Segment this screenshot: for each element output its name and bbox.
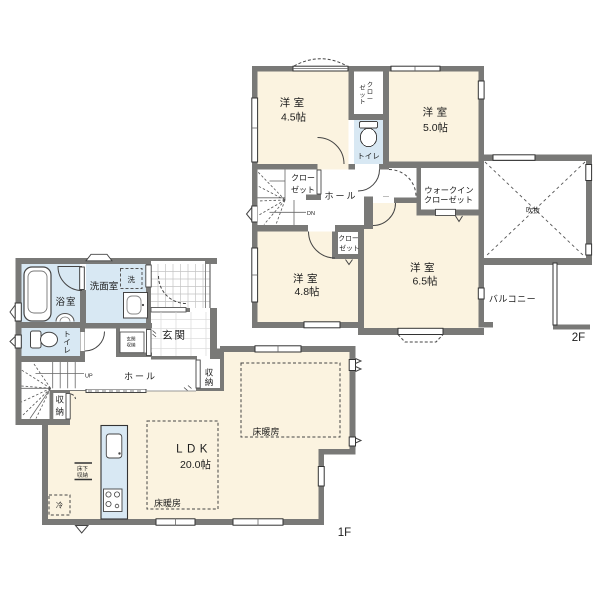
svg-text:冷: 冷 — [56, 501, 63, 510]
svg-text:クローゼット: クローゼット — [424, 195, 473, 205]
svg-text:5.0帖: 5.0帖 — [423, 121, 449, 134]
svg-text:納: 納 — [205, 377, 214, 387]
svg-text:吹抜: 吹抜 — [526, 206, 540, 215]
svg-text:浴室: 浴室 — [55, 296, 76, 308]
svg-text:4.5帖: 4.5帖 — [281, 110, 307, 123]
svg-text:ゼット: ゼット — [339, 244, 359, 253]
svg-text:ロ: ロ — [367, 89, 373, 96]
svg-text:4.8帖: 4.8帖 — [294, 285, 320, 298]
svg-text:洗面室: 洗面室 — [90, 281, 119, 293]
svg-text:20.0帖: 20.0帖 — [180, 458, 211, 471]
svg-text:床暖房: 床暖房 — [154, 498, 181, 509]
svg-text:クロー: クロー — [291, 174, 315, 183]
svg-text:洋室: 洋室 — [280, 96, 308, 109]
svg-text:納: 納 — [56, 407, 65, 417]
svg-text:洋室: 洋室 — [293, 272, 321, 285]
svg-text:ク: ク — [367, 82, 373, 89]
svg-text:洗: 洗 — [128, 274, 136, 284]
svg-text:ウォークイン: ウォークイン — [424, 186, 473, 195]
svg-text:収納: 収納 — [77, 471, 89, 479]
svg-text:ゼット: ゼット — [291, 185, 315, 195]
svg-text:収: 収 — [56, 395, 65, 405]
svg-text:ー: ー — [367, 96, 373, 103]
svg-text:洋室: 洋室 — [423, 106, 451, 119]
svg-text:バルコニー: バルコニー — [489, 294, 536, 304]
svg-text:床暖房: 床暖房 — [252, 426, 279, 437]
svg-text:トイレ: トイレ — [357, 152, 380, 161]
svg-text:2F: 2F — [572, 332, 585, 344]
svg-text:クロー: クロー — [338, 235, 359, 243]
svg-text:ゼ: ゼ — [359, 84, 365, 92]
svg-text:床下: 床下 — [77, 465, 89, 473]
svg-text:6.5帖: 6.5帖 — [412, 274, 438, 287]
svg-text:UP: UP — [85, 374, 93, 380]
svg-text:収: 収 — [205, 368, 214, 378]
svg-text:DN: DN — [307, 211, 315, 217]
svg-text:ホール: ホール — [324, 191, 357, 201]
svg-text:洋室: 洋室 — [410, 261, 438, 274]
svg-text:1F: 1F — [338, 527, 351, 539]
svg-text:玄関: 玄関 — [162, 328, 187, 341]
svg-text:ト: ト — [359, 99, 365, 106]
svg-text:LDK: LDK — [176, 444, 212, 456]
svg-text:レ: レ — [63, 346, 71, 355]
svg-text:ッ: ッ — [359, 92, 365, 99]
svg-text:ホール: ホール — [124, 371, 157, 381]
svg-text:収納: 収納 — [127, 342, 136, 349]
svg-text:玄関: 玄関 — [127, 336, 136, 343]
